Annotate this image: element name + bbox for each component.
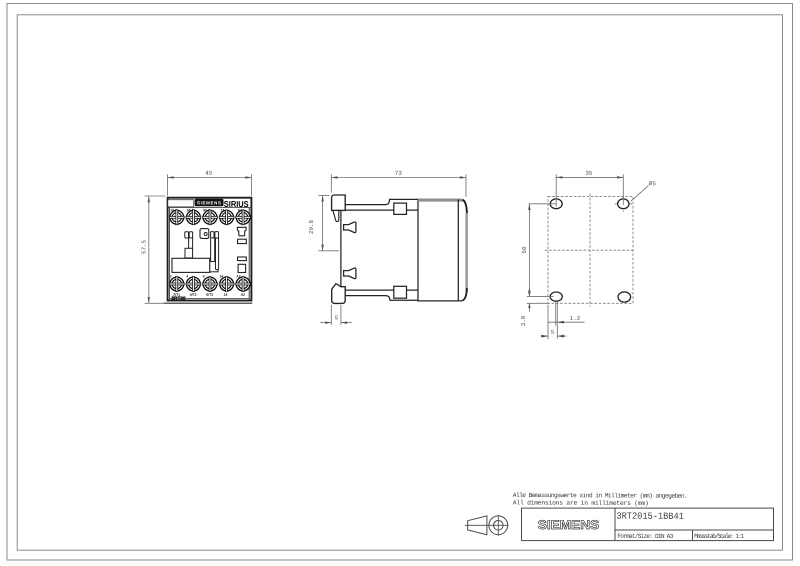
- svg-text:5: 5: [335, 314, 339, 321]
- svg-text:Ø5: Ø5: [649, 180, 657, 187]
- svg-text:SIRIUS: SIRIUS: [224, 199, 249, 209]
- svg-text:All dimensions are in millimet: All dimensions are in millimeters (mm): [513, 499, 649, 507]
- svg-text:2: 2: [170, 274, 172, 278]
- svg-text:35: 35: [585, 170, 593, 177]
- svg-text:45: 45: [205, 170, 213, 177]
- svg-text:SIEMENS: SIEMENS: [538, 518, 600, 532]
- svg-text:14: 14: [224, 293, 228, 297]
- svg-text:Format/Size: DIN A3: Format/Size: DIN A3: [617, 533, 673, 540]
- svg-text:3RT2015-1BB41: 3RT2015-1BB41: [616, 511, 684, 522]
- svg-text:A2: A2: [241, 293, 245, 297]
- svg-text:6: 6: [203, 275, 205, 279]
- svg-text:6/T3: 6/T3: [206, 293, 213, 297]
- svg-text:29.8: 29.8: [308, 219, 315, 234]
- svg-text:4/T2: 4/T2: [190, 293, 197, 297]
- svg-text:Massstab/Scale: 1:1: Massstab/Scale: 1:1: [694, 533, 744, 540]
- svg-text:SIEMENS: SIEMENS: [197, 200, 221, 205]
- svg-text:Alle Bemassungswerte sind in M: Alle Bemassungswerte sind in Millimeter …: [513, 492, 688, 500]
- svg-text:50: 50: [521, 246, 528, 254]
- svg-text:5: 5: [551, 329, 555, 336]
- svg-text:73: 73: [395, 170, 403, 177]
- svg-text:3.8: 3.8: [520, 315, 527, 326]
- svg-text:57.5: 57.5: [140, 239, 147, 254]
- svg-text:4: 4: [186, 274, 188, 278]
- svg-text:1.2: 1.2: [570, 315, 581, 322]
